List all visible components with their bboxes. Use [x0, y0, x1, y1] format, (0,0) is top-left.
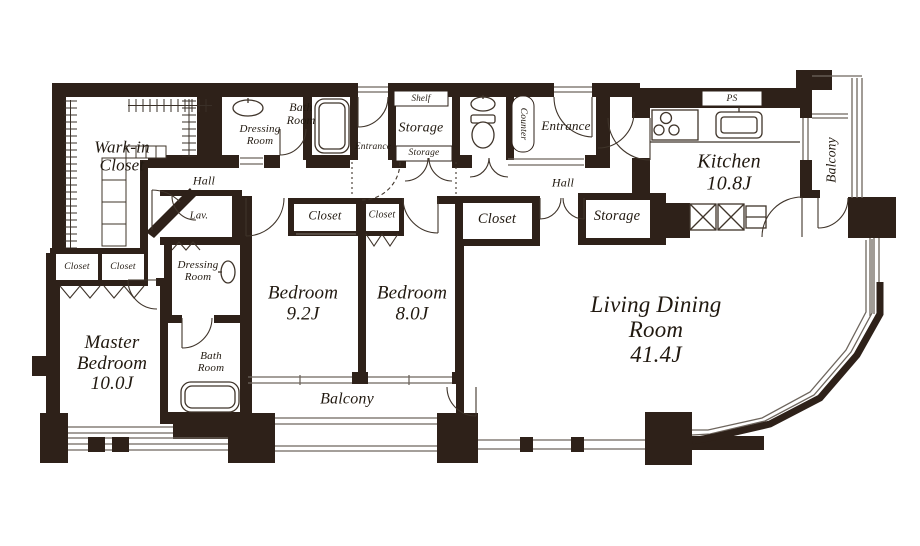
room-label-bath-room-lower: Bath Room — [198, 351, 224, 375]
label-counter: Counter — [518, 108, 528, 141]
room-label-storage-hall: Storage — [594, 209, 641, 225]
room-label-closet-master-1: Closet — [64, 262, 89, 272]
room-label-bath-room-top: Bath Room — [287, 101, 316, 127]
bathtub-icon — [315, 99, 349, 153]
room-label-living-dining: Living Dining Room 41.4J — [590, 293, 721, 367]
room-label-bedroom-80: Bedroom 8.0J — [377, 283, 447, 324]
appliance-space-icon — [690, 204, 744, 230]
room-label-hall-west: Hall — [193, 175, 215, 188]
wall-structure — [32, 70, 896, 450]
room-label-kitchen: Kitchen 10.8J — [697, 151, 761, 194]
label-ps: PS — [727, 94, 738, 104]
room-label-hall-east: Hall — [552, 177, 574, 190]
stove-icon — [652, 110, 698, 140]
door-arc — [608, 118, 650, 160]
sink-icon — [218, 261, 235, 283]
label-shelf: Shelf — [412, 94, 431, 104]
bathtub-icon — [181, 382, 239, 412]
room-label-entrance: Entrance — [541, 119, 590, 133]
room-label-balcony-south: Balcony — [320, 390, 374, 407]
room-label-lavatory: Lav. — [190, 210, 208, 221]
room-label-closet-92: Closet — [308, 209, 341, 223]
room-label-master-bedroom: Master Bedroom 10.0J — [77, 333, 147, 395]
room-label-walk-in-closet: Wark-in Closet — [94, 139, 150, 176]
room-label-balcony-east: Balcony — [825, 137, 840, 183]
door-arc — [762, 197, 802, 237]
room-label-closet-master-2: Closet — [110, 262, 135, 272]
room-label-service-entrance: Entrance — [355, 142, 391, 152]
floor-plan-drawing — [0, 0, 920, 546]
door-arc — [818, 198, 848, 228]
room-label-storage-top: Storage — [399, 120, 444, 135]
room-label-dressing-room-lower: Dressing Room — [178, 260, 219, 284]
kitchen-sink-icon — [716, 107, 762, 138]
refrigerator-icon — [746, 206, 766, 228]
room-label-closet-hall: Closet — [478, 212, 516, 228]
door-arc — [540, 198, 584, 219]
room-label-bedroom-92: Bedroom 9.2J — [268, 283, 338, 324]
door-arc — [182, 318, 212, 348]
room-label-closet-80: Closet — [369, 211, 396, 222]
door-arc — [470, 158, 508, 177]
room-label-dressing-room-top: Dressing Room — [240, 124, 281, 148]
sink-icon — [471, 95, 495, 111]
door-arc — [403, 198, 438, 233]
label-storage-small: Storage — [409, 148, 440, 158]
floor-plan: Wark-in Closet Dressing Room Bath Room E… — [0, 0, 920, 546]
door-arc — [280, 129, 306, 155]
sink-icon — [233, 98, 263, 116]
door-arc — [358, 97, 388, 127]
toilet-icon — [471, 115, 495, 148]
